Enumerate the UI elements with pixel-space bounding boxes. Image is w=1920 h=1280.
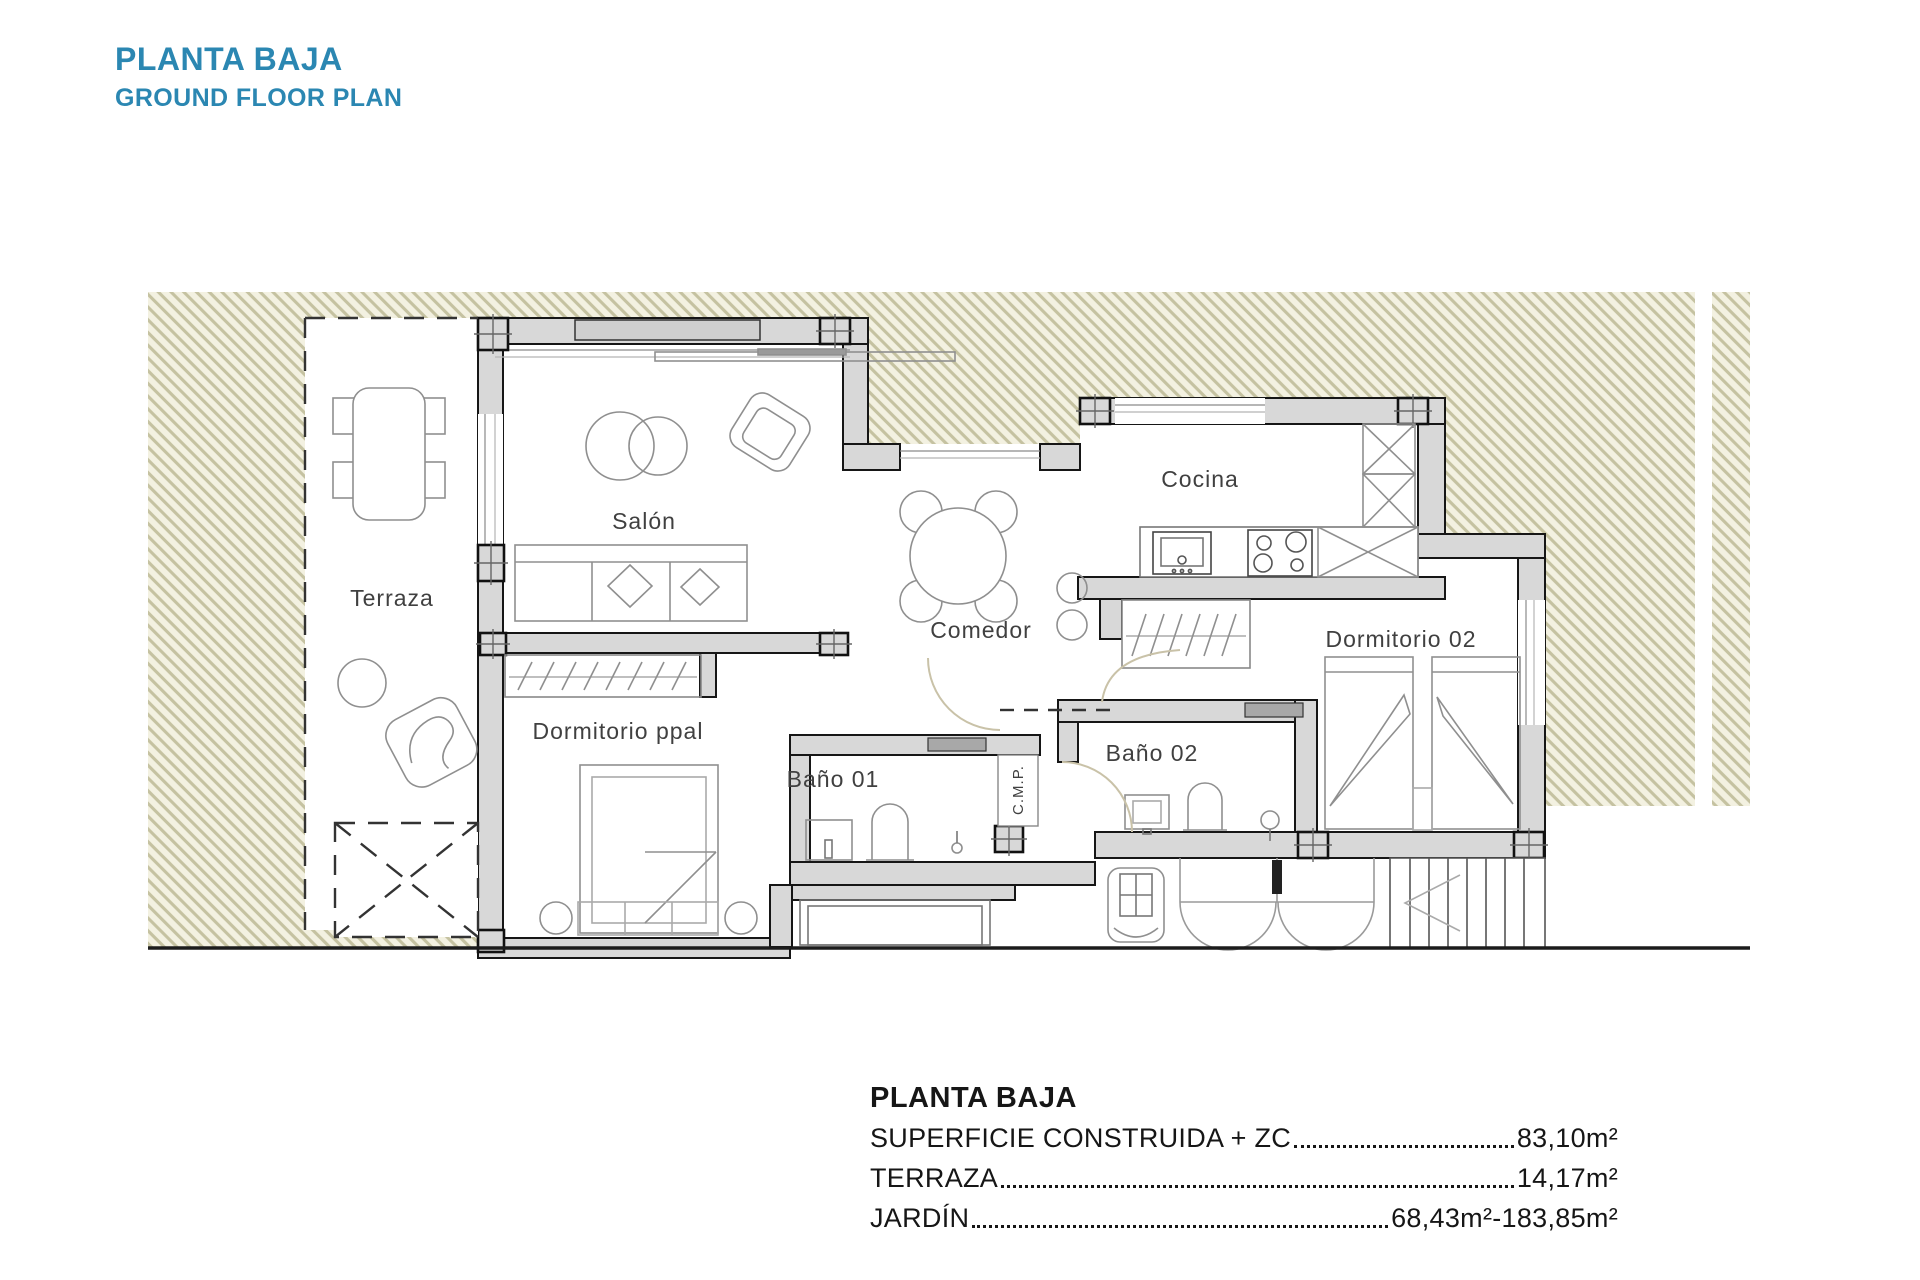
terrace-dining-table [353,388,425,520]
tv [758,349,846,355]
legend-row: JARDÍN 68,43m²-183,85m² [870,1203,1618,1234]
column-icon [1294,828,1332,862]
bano01-mirror [928,738,986,751]
area-legend: PLANTA BAJA SUPERFICIE CONSTRUIDA + ZC 8… [870,1082,1618,1243]
room-label-salon: Salón [612,508,676,534]
room-label-bano-02: Baño 02 [1106,740,1199,766]
terrace-slider-window [478,414,503,545]
legend-row-value: 14,17m² [1517,1163,1618,1194]
legend-row-label: TERRAZA [870,1163,998,1194]
legend-row-label: SUPERFICIE CONSTRUIDA + ZC [870,1123,1291,1154]
room-label-comedor: Comedor [930,617,1032,643]
comedor-furniture [900,491,1017,622]
legend-row-value: 68,43m²-183,85m² [1391,1203,1618,1234]
page-subtitle: GROUND FLOOR PLAN [115,84,402,112]
dotted-leader [1294,1145,1514,1148]
pergola-dashed-outline [335,823,478,937]
dotted-leader [972,1225,1388,1228]
legend-row-value: 83,10m² [1517,1123,1618,1154]
column-icon [474,541,508,585]
column-icon [1076,394,1114,428]
room-label-bano-01: Baño 01 [787,766,880,792]
cocina-window [1115,398,1265,424]
column-icon [816,629,852,659]
legend-row: SUPERFICIE CONSTRUIDA + ZC 83,10m² [870,1123,1618,1154]
column-icon [1394,394,1432,428]
room-label-dormitorio-02: Dormitorio 02 [1325,626,1476,652]
dotted-leader [1001,1185,1514,1188]
page-title: PLANTA BAJA [115,42,402,78]
salon-window-blind-box [575,320,760,340]
stairs [1390,858,1545,948]
column-icon [991,822,1027,856]
room-label-cmp: C.M.P. [1010,765,1027,815]
column-icon [474,314,512,354]
room-label-terraza: Terraza [350,585,434,611]
room-label-cocina: Cocina [1161,466,1239,492]
column-icon [1510,828,1548,862]
title-block: PLANTA BAJA GROUND FLOOR PLAN [115,42,402,112]
dorm02-window [1518,600,1545,725]
legend-row-label: JARDÍN [870,1203,969,1234]
bano02-vent [1245,703,1303,717]
coffee-table [586,412,654,480]
column-icon [816,314,854,348]
room-label-dormitorio-ppal: Dormitorio ppal [533,718,704,744]
page: Terraza Salón Comedor Cocina Dormitorio … [0,0,1920,1280]
legend-title: PLANTA BAJA [870,1082,1618,1115]
dining-table [910,508,1006,604]
legend-row: TERRAZA 14,17m² [870,1163,1618,1194]
